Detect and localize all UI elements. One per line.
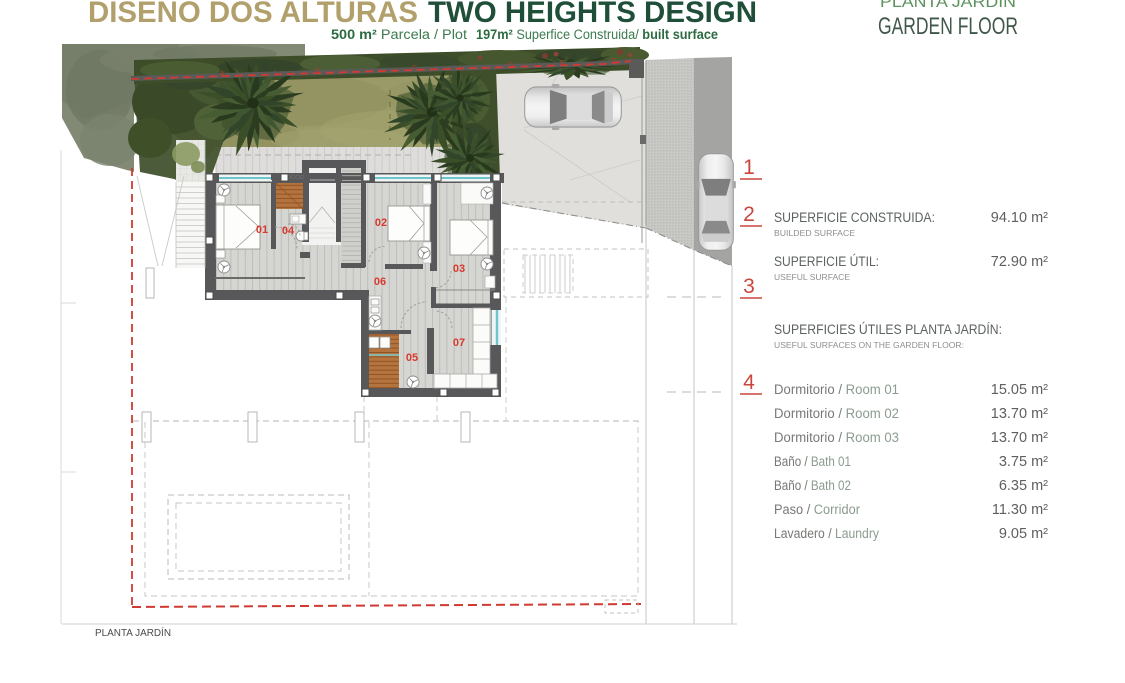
svg-text:D: D <box>508 62 513 69</box>
svg-text:F: F <box>612 58 616 65</box>
svg-text:TWO HEIGHTS DESIGN: TWO HEIGHTS DESIGN <box>428 0 757 29</box>
svg-text:2: 2 <box>743 203 755 226</box>
svg-text:USEFUL SURFACES ON THE GARDEN: USEFUL SURFACES ON THE GARDEN FLOOR: <box>774 341 964 350</box>
svg-text:1: 1 <box>743 156 755 179</box>
svg-text:4: 4 <box>743 371 755 394</box>
svg-text:Dormitorio / Room 01: Dormitorio / Room 01 <box>774 382 899 397</box>
svg-text:72.90 m²: 72.90 m² <box>991 254 1048 270</box>
svg-text:197m² Superfice Construida/ bu: 197m² Superfice Construida/ built surfac… <box>476 27 718 42</box>
svg-text:94.10 m²: 94.10 m² <box>991 210 1048 226</box>
svg-text:Dormitorio / Room 02: Dormitorio / Room 02 <box>774 406 899 421</box>
svg-text:Lavadero / Laundry: Lavadero / Laundry <box>774 526 879 541</box>
svg-text:Paso / Corridor: Paso / Corridor <box>774 502 860 517</box>
svg-text:02: 02 <box>375 217 387 229</box>
svg-text:USEFUL SURFACE: USEFUL SURFACE <box>774 273 850 282</box>
svg-text:15.05 m²: 15.05 m² <box>991 382 1048 398</box>
svg-text:PLANTA JARDÍN: PLANTA JARDÍN <box>880 0 1016 11</box>
svg-text:01: 01 <box>256 224 268 236</box>
svg-text:13.70 m²: 13.70 m² <box>991 406 1048 422</box>
svg-text:6.35 m²: 6.35 m² <box>999 478 1048 494</box>
svg-text:Baño / Bath 02: Baño / Bath 02 <box>774 478 851 493</box>
svg-text:GARDEN FLOOR: GARDEN FLOOR <box>878 13 1018 40</box>
svg-text:DISEÑO DOS ALTURAS: DISEÑO DOS ALTURAS <box>88 0 418 29</box>
svg-text:9.05 m²: 9.05 m² <box>999 526 1048 542</box>
svg-text:SUPERFICIE CONSTRUIDA:: SUPERFICIE CONSTRUIDA: <box>774 210 935 225</box>
svg-text:PLANTA JARDÍN: PLANTA JARDÍN <box>95 626 171 639</box>
svg-text:500 m² Parcela / Plot: 500 m² Parcela / Plot <box>331 27 467 42</box>
svg-text:05: 05 <box>406 352 418 364</box>
svg-text:BUILDED SURFACE: BUILDED SURFACE <box>774 229 855 238</box>
svg-text:A: A <box>220 71 225 78</box>
svg-text:C: C <box>412 65 417 72</box>
svg-text:E: E <box>560 60 565 67</box>
svg-text:SUPERFICIES ÚTILES PLANTA JARD: SUPERFICIES ÚTILES PLANTA JARDÍN: <box>774 322 1002 337</box>
svg-text:SUPERFICIE ÚTIL:: SUPERFICIE ÚTIL: <box>774 254 879 269</box>
svg-text:3.75 m²: 3.75 m² <box>999 454 1048 470</box>
svg-text:11.30 m²: 11.30 m² <box>992 502 1048 518</box>
svg-text:04: 04 <box>282 225 295 237</box>
svg-text:13.70 m²: 13.70 m² <box>991 430 1048 446</box>
svg-text:Dormitorio / Room 03: Dormitorio / Room 03 <box>774 430 899 445</box>
svg-text:3: 3 <box>743 275 755 298</box>
svg-text:B: B <box>315 68 320 75</box>
svg-text:03: 03 <box>453 263 465 275</box>
svg-text:07: 07 <box>453 337 465 349</box>
svg-text:Baño / Bath 01: Baño / Bath 01 <box>774 454 851 469</box>
svg-text:06: 06 <box>374 276 386 288</box>
